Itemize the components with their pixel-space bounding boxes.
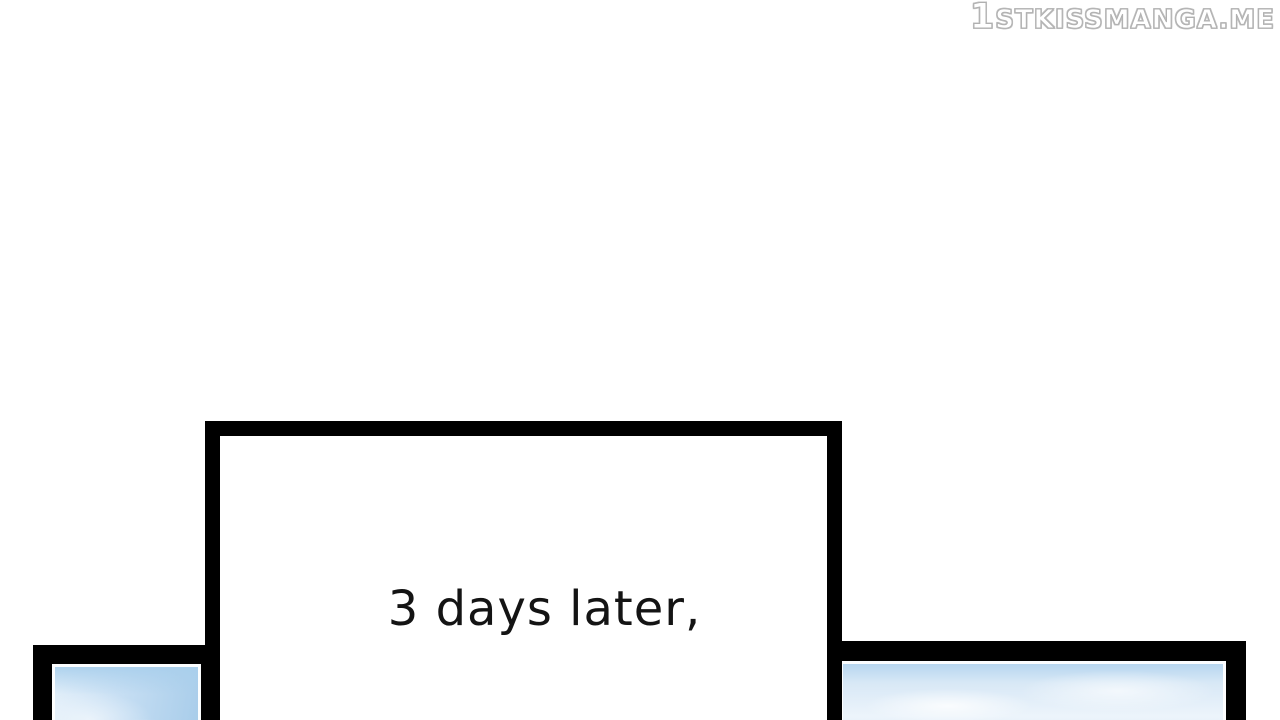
sky-clouds-image-right bbox=[840, 661, 1226, 720]
sky-panel-left bbox=[33, 645, 220, 720]
sky-panel-right bbox=[840, 641, 1246, 720]
caption-text: 3 days later, bbox=[346, 582, 701, 637]
caption-panel: 3 days later, bbox=[205, 421, 842, 720]
site-watermark: 1STKISSMANGA.ME bbox=[970, 0, 1275, 40]
sky-clouds-image-left bbox=[52, 664, 201, 720]
manga-page: 1STKISSMANGA.ME 3 days later, bbox=[0, 0, 1280, 720]
